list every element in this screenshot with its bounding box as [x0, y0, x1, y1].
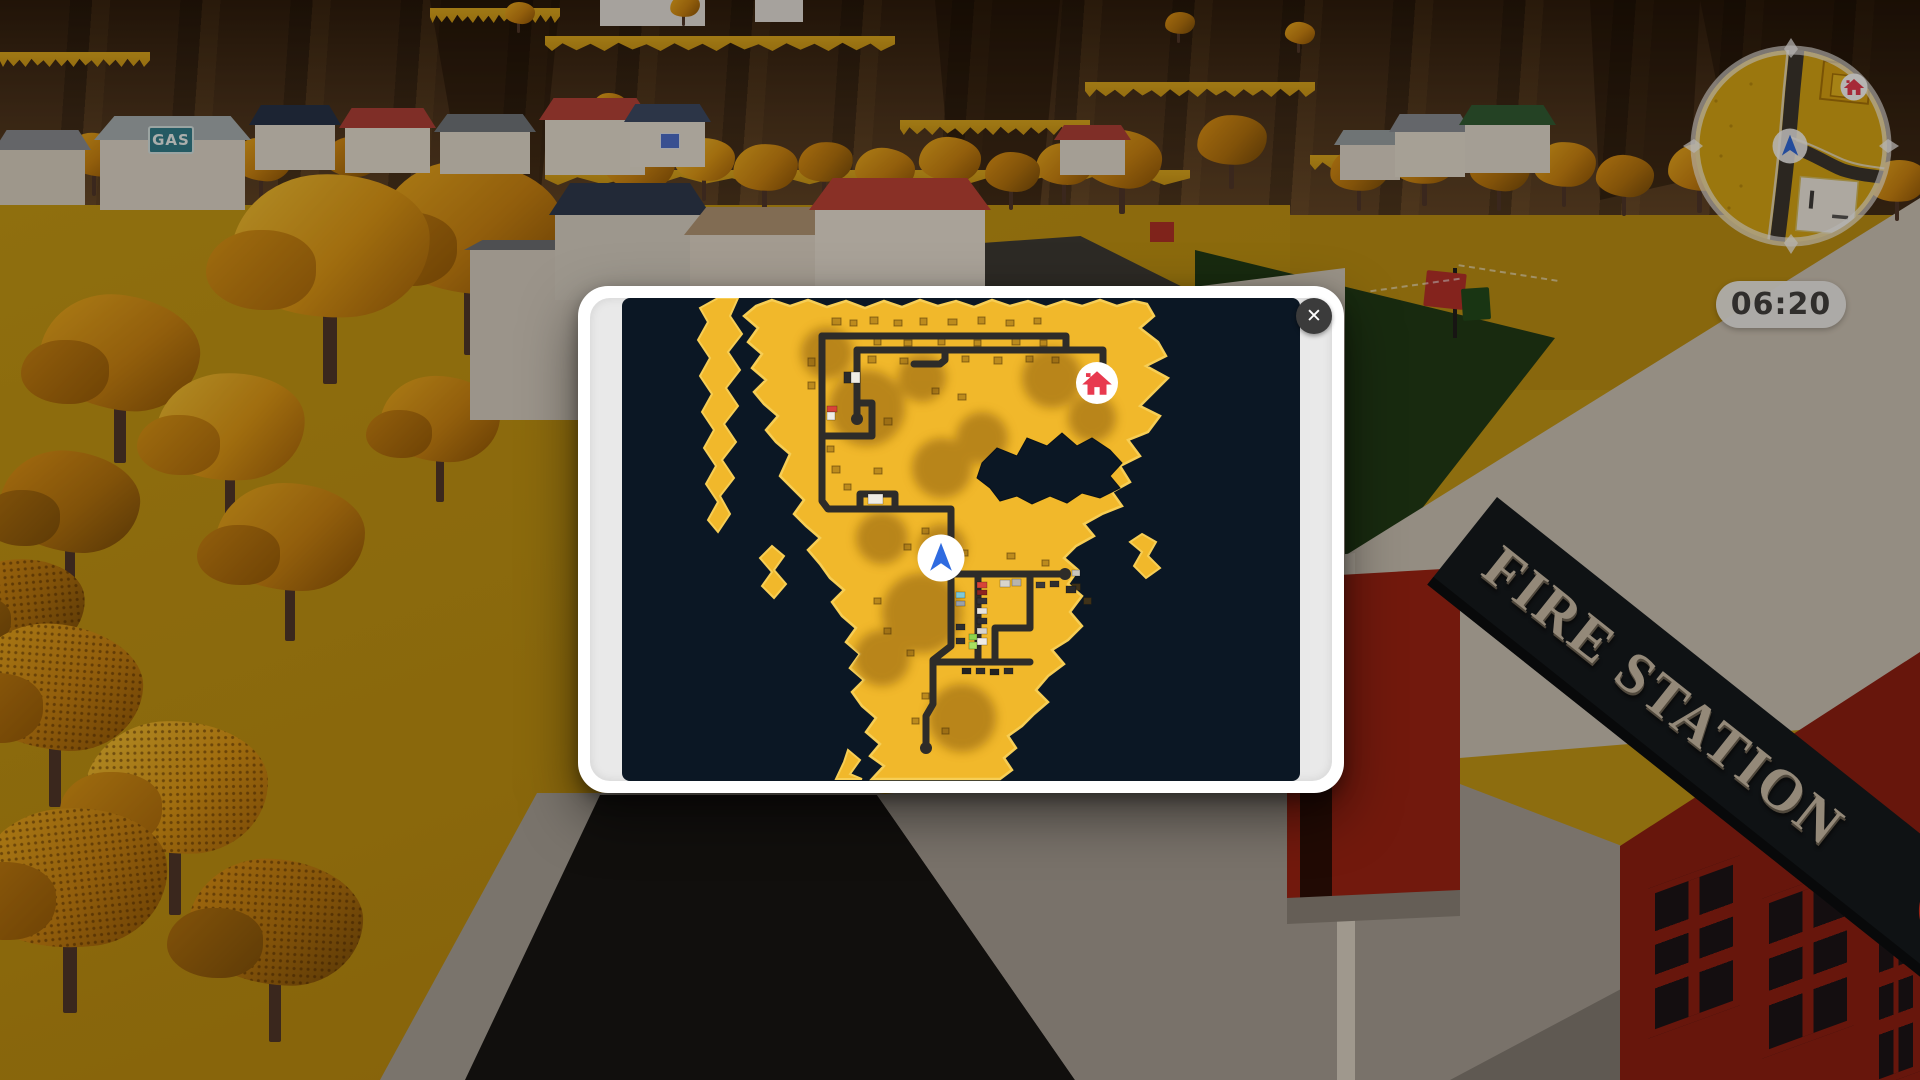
map-building	[976, 668, 985, 674]
map-building	[977, 628, 987, 634]
close-button[interactable]: ✕	[1296, 298, 1332, 334]
map-building	[868, 494, 883, 504]
map-building	[977, 618, 987, 624]
map-building	[990, 669, 999, 675]
map-building	[956, 601, 965, 606]
map-building	[977, 582, 987, 588]
map-building	[977, 590, 987, 595]
map-building	[1000, 580, 1010, 587]
map-building	[1012, 579, 1021, 586]
map-building	[1066, 586, 1076, 593]
map-player-arrow-icon	[918, 535, 965, 582]
map-building	[1072, 570, 1080, 576]
map-panel	[590, 298, 1332, 781]
map-building	[977, 638, 987, 645]
map-home-icon	[1076, 362, 1118, 404]
map-modal	[578, 286, 1344, 793]
game-screen: GAS FIRE STATION 06:20 ✕	[0, 0, 1920, 1080]
map-building	[969, 634, 977, 640]
map-building	[827, 412, 835, 420]
map-building	[1036, 582, 1045, 588]
map-building	[1050, 581, 1059, 587]
map-building	[977, 608, 987, 614]
map-building	[827, 406, 837, 412]
map-building	[844, 372, 851, 383]
map-building	[1004, 668, 1013, 674]
map-building	[956, 592, 965, 598]
close-icon: ✕	[1306, 307, 1322, 326]
map-building	[956, 624, 965, 630]
world-map[interactable]	[622, 298, 1300, 781]
map-building	[956, 638, 965, 644]
map-building	[962, 668, 971, 674]
map-building	[977, 598, 987, 604]
map-building	[969, 642, 977, 649]
